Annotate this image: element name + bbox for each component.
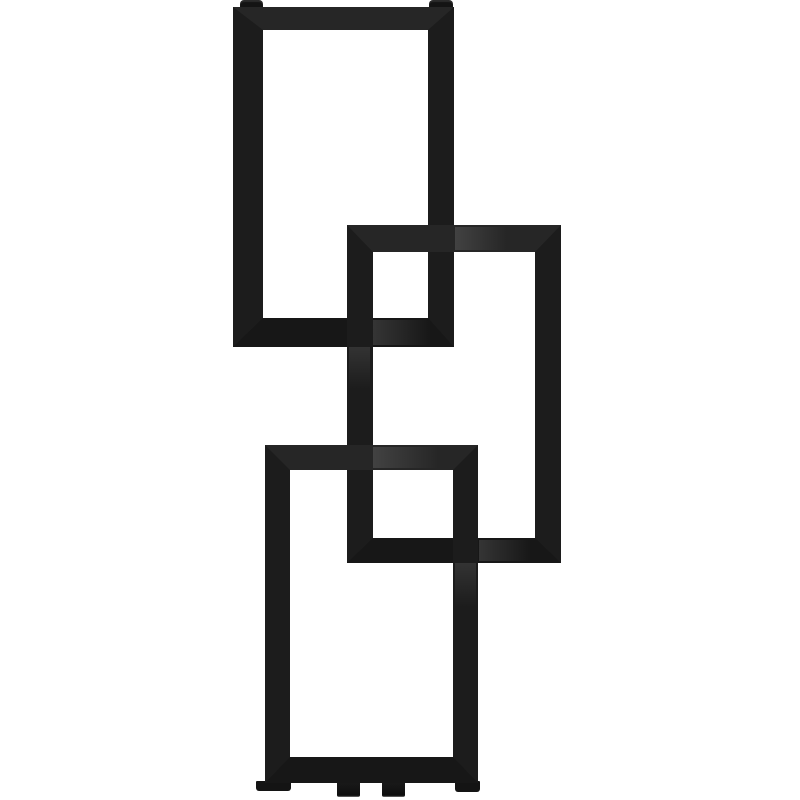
product-photo [0, 0, 800, 800]
inlet-pipe-right-icon [382, 782, 405, 797]
inlet-pipe-left-icon [337, 782, 360, 797]
bottom-frame [265, 445, 478, 783]
